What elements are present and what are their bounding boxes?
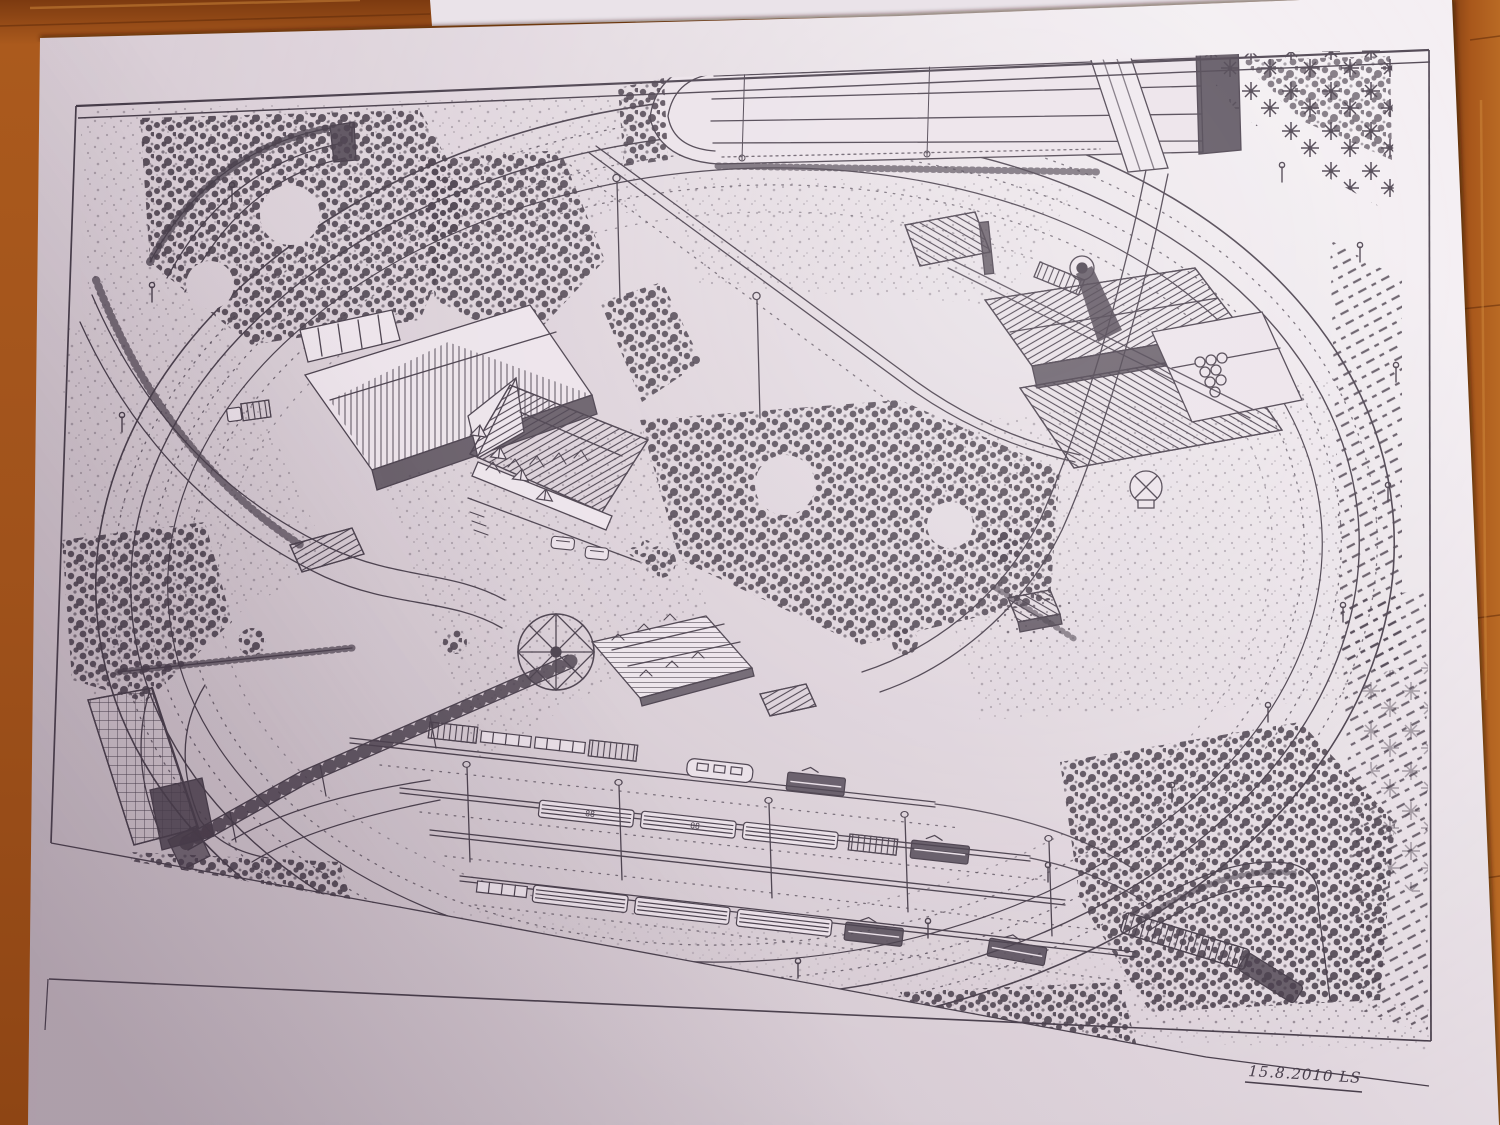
paper-shade	[28, 0, 1499, 1125]
scene-canvas: 88 88	[0, 0, 1500, 1125]
photo-of-track-plan: 88 88	[0, 0, 1500, 1125]
